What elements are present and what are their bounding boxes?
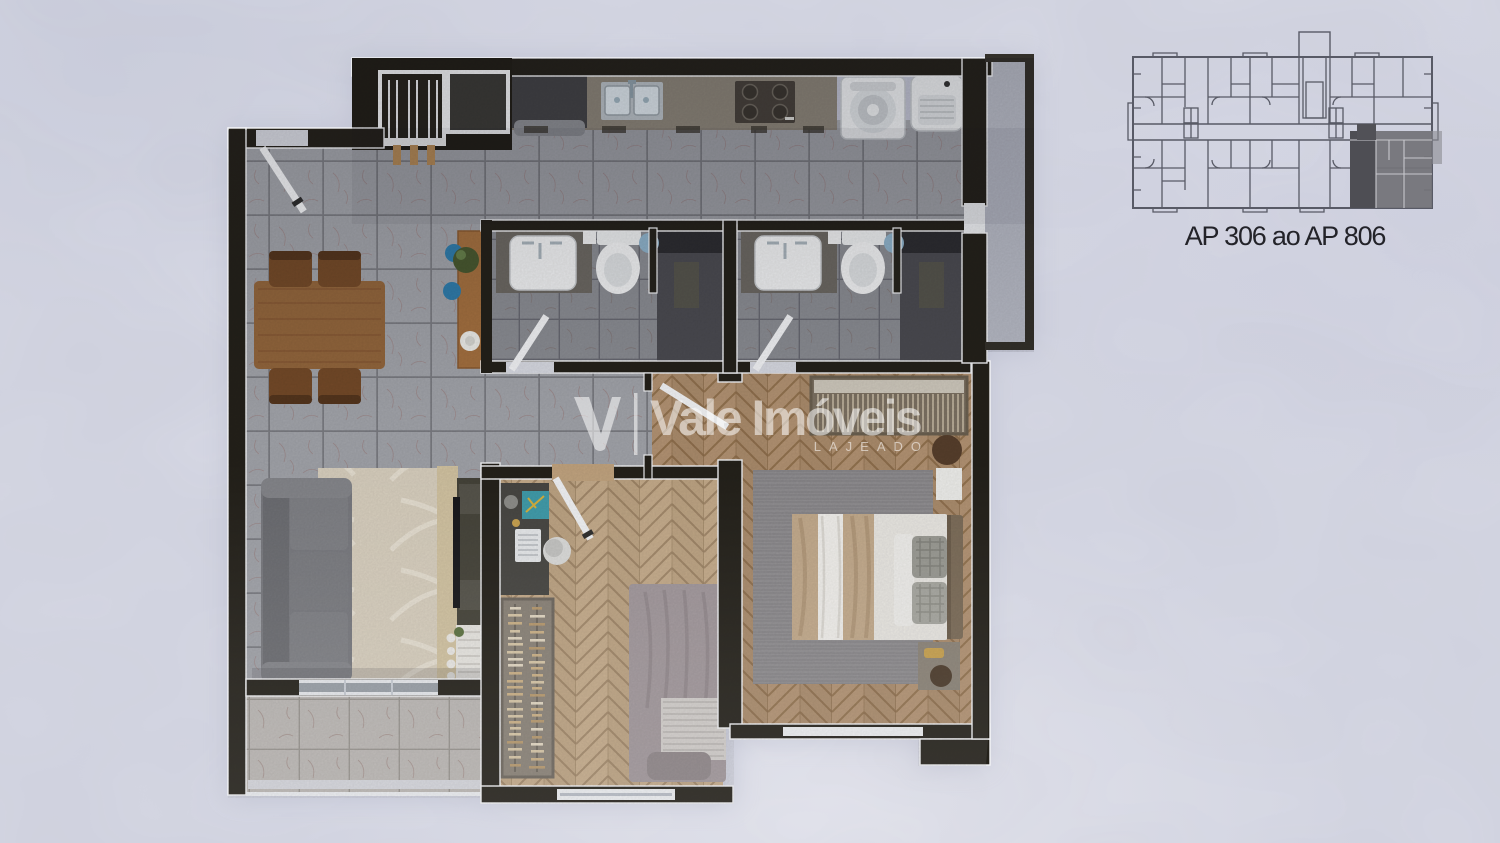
- svg-text:Vale Imóveis: Vale Imóveis: [650, 390, 921, 446]
- svg-text:LAJEADO: LAJEADO: [814, 439, 929, 454]
- svg-text:AP 306 ao AP 806: AP 306 ao AP 806: [1185, 221, 1386, 251]
